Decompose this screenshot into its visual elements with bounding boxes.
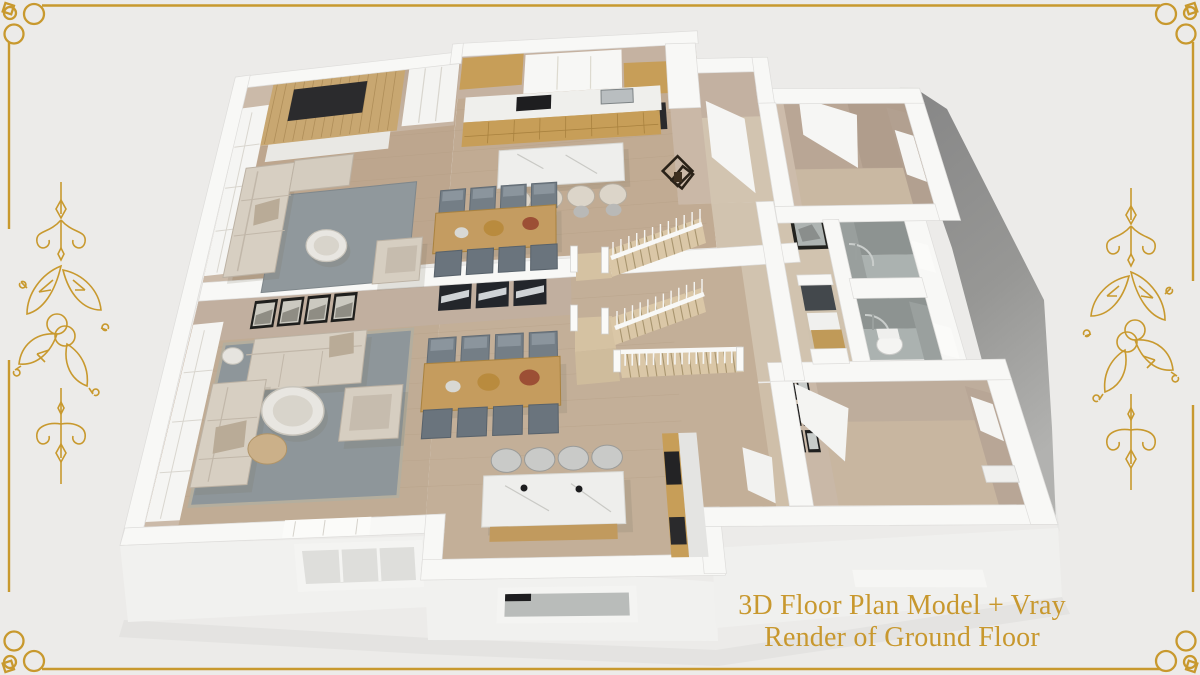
svg-text:3D Floor Plan Model + Vray: 3D Floor Plan Model + Vray xyxy=(738,590,1066,621)
svg-text:Render of Ground Floor: Render of Ground Floor xyxy=(764,622,1040,653)
